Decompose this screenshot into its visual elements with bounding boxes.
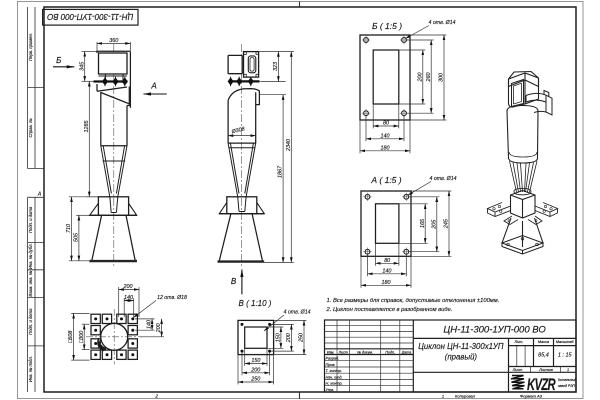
svg-text:Циклон ЦН-11-300х1УП: Циклон ЦН-11-300х1УП	[418, 342, 504, 351]
svg-text:245: 245	[444, 218, 450, 229]
svg-text:1867: 1867	[278, 165, 284, 178]
svg-text:Формат А3: Формат А3	[520, 394, 543, 399]
svg-text:140: 140	[124, 295, 133, 301]
svg-text:Н. контр.: Н. контр.	[326, 382, 343, 386]
svg-text:360: 360	[109, 38, 118, 44]
svg-text:200: 200	[123, 284, 133, 290]
svg-text:Масса: Масса	[538, 340, 549, 344]
svg-text:□300: □300	[79, 331, 85, 343]
svg-text:4 отв. Ø14: 4 отв. Ø14	[430, 176, 457, 182]
svg-text:Дата: Дата	[401, 350, 411, 354]
svg-text:200: 200	[417, 73, 423, 83]
svg-text:А: А	[37, 192, 42, 198]
svg-text:ЦН-11-300-1УП-000 ВО: ЦН-11-300-1УП-000 ВО	[47, 12, 133, 21]
svg-text:Б: Б	[56, 56, 61, 65]
svg-text:В: В	[231, 277, 237, 286]
svg-text:140: 140	[382, 268, 391, 274]
svg-text:Б ( 1:5 ): Б ( 1:5 )	[372, 21, 402, 31]
svg-text:А: А	[150, 82, 156, 91]
svg-text:Подп.: Подп.	[385, 350, 395, 354]
svg-text:1 : 15: 1 : 15	[558, 353, 573, 359]
svg-text:2: 2	[154, 394, 158, 399]
svg-text:200: 200	[286, 333, 292, 343]
svg-text:2. Циклон поставляется в разоб: 2. Циклон поставляется в разобранном вид…	[326, 307, 453, 313]
svg-text:1. Все размеры для справок, до: 1. Все размеры для справок, допустимые о…	[327, 298, 500, 304]
svg-text:Лист: Лист	[512, 368, 523, 372]
svg-text:323: 323	[273, 62, 279, 71]
svg-text:80: 80	[383, 121, 389, 127]
svg-text:Т. контр.: Т. контр.	[326, 369, 342, 373]
svg-text:4 отв. Ø14: 4 отв. Ø14	[284, 310, 311, 316]
svg-text:А ( 1:5 ): А ( 1:5 )	[370, 175, 401, 185]
svg-text:205: 205	[431, 219, 437, 230]
svg-text:1: 1	[442, 394, 444, 399]
svg-text:Нач. отд.: Нач. отд.	[326, 375, 343, 379]
svg-text:Взам. инв. №: Взам. инв. №	[28, 270, 33, 296]
svg-text:Инв. № дубл.: Инв. № дубл.	[28, 243, 33, 269]
svg-text:Перв. примен.: Перв. примен.	[28, 33, 33, 61]
svg-text:85,4: 85,4	[538, 353, 549, 359]
svg-text:ЦН-11-300-1УП-000 ВО: ЦН-11-300-1УП-000 ВО	[443, 325, 546, 336]
svg-text:Лист: Лист	[338, 350, 348, 354]
svg-text:300: 300	[439, 73, 445, 82]
svg-text:345: 345	[79, 61, 85, 71]
svg-text:KVZR: KVZR	[527, 375, 556, 394]
svg-text:150: 150	[251, 358, 260, 364]
svg-text:Лит.: Лит.	[514, 340, 524, 344]
svg-text:710: 710	[66, 224, 72, 233]
svg-text:Подп. и дата: Подп. и дата	[28, 206, 33, 233]
svg-text:Разраб.: Разраб.	[326, 357, 340, 361]
svg-text:12 отв. Ø18: 12 отв. Ø18	[157, 295, 187, 301]
svg-text:□508: □508	[68, 331, 74, 343]
svg-text:Справ. №: Справ. №	[28, 118, 33, 137]
svg-text:200: 200	[250, 367, 260, 373]
svg-text:Листов: Листов	[538, 368, 553, 372]
svg-text:200: 200	[156, 323, 162, 333]
svg-text:Утв.: Утв.	[326, 388, 335, 392]
svg-text:(правый): (правый)	[445, 353, 478, 362]
svg-text:Изм.: Изм.	[327, 350, 335, 354]
svg-text:Подп. и дата: Подп. и дата	[28, 308, 33, 335]
svg-text:260: 260	[426, 73, 432, 83]
svg-text:180: 180	[382, 280, 391, 286]
svg-text:180: 180	[381, 145, 390, 151]
svg-text:250: 250	[250, 377, 260, 383]
svg-text:1: 1	[567, 368, 569, 372]
svg-text:80: 80	[384, 258, 390, 264]
svg-text:Копировал: Копировал	[455, 394, 476, 399]
svg-text:Инв. № подл.: Инв. № подл.	[28, 356, 33, 382]
svg-text:Масштаб: Масштаб	[556, 340, 575, 344]
svg-text:250: 250	[299, 333, 305, 343]
svg-text:165: 165	[420, 218, 426, 228]
svg-text:В ( 1:10 ): В ( 1:10 )	[239, 299, 272, 308]
svg-text:Пров.: Пров.	[326, 363, 336, 367]
svg-text:2340: 2340	[286, 139, 292, 152]
svg-text:140: 140	[381, 133, 390, 139]
svg-text:Котельный: Котельный	[558, 378, 577, 382]
svg-text:140: 140	[147, 320, 153, 329]
svg-text:4 отв. Ø14: 4 отв. Ø14	[429, 20, 456, 26]
svg-text:№ докум.: № докум.	[357, 350, 373, 354]
svg-text:505: 505	[74, 232, 80, 242]
svg-text:1285: 1285	[84, 120, 90, 133]
svg-text:150: 150	[276, 333, 282, 342]
svg-text:завод РЭП: завод РЭП	[557, 384, 575, 388]
